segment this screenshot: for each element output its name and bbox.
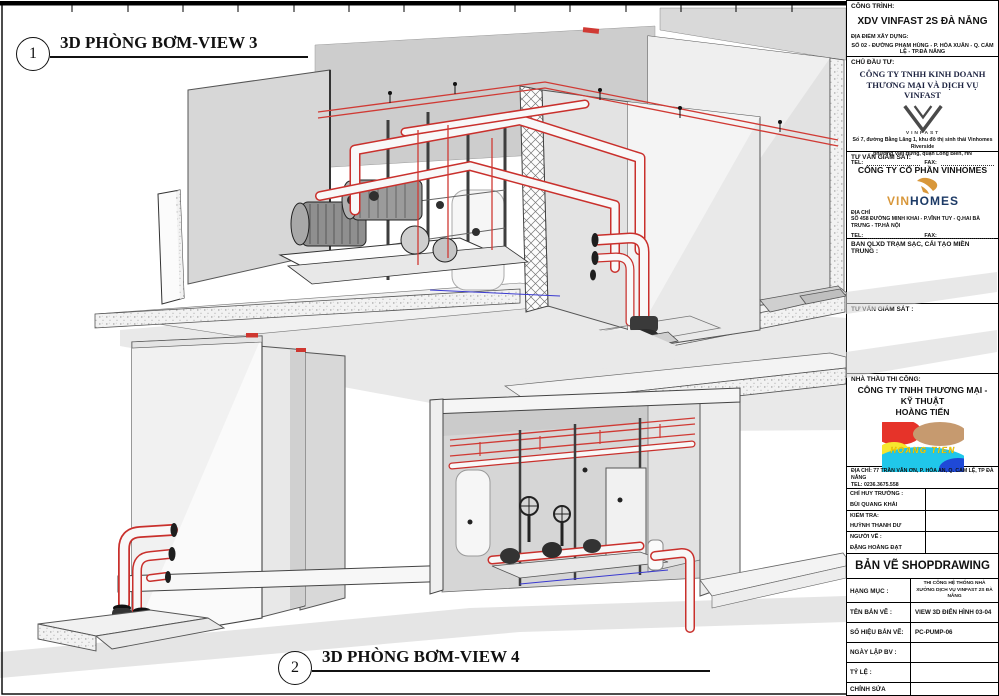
view-number: 1 [29,45,37,63]
signer-role: KIỂM TRA: [850,513,922,519]
supervisor-address: SỐ 458 ĐƯỜNG MINH KHAI - P.VĨNH TUY - Q.… [851,216,994,230]
hoang-tien-logo-text: HOANG TIEN [890,446,955,455]
signature-rows: CHỈ HUY TRƯỞNG : BÙI QUANG KHẢI KIỂM TRA… [847,489,998,554]
view3-title: 1 3D PHÒNG BƠM-VIEW 3 [16,24,308,58]
signer-name: ĐẶNG HOÀNG ĐẠT [850,545,922,551]
investor-label: CHỦ ĐẦU TƯ: [851,59,994,66]
shopdrawing-sheet: 1 3D PHÒNG BƠM-VIEW 3 2 3D PHÒNG BƠM-VIE… [0,0,999,696]
investor-company-line1: CÔNG TY TNHH KINH DOANH [851,69,994,80]
supervisor2-label: TƯ VẤN GIÁM SÁT : [851,306,994,313]
row-value: VIEW 3D ĐIỂN HÌNH 03-04 [911,603,998,622]
vinfast-logo-text: VINFAST [905,130,939,135]
signature-cell [925,511,998,532]
view4-title: 2 3D PHÒNG BƠM-VIEW 4 [278,638,710,672]
contractor-company-line1: CÔNG TY TNHH THƯƠNG MẠI - KỸ THUẬT [851,385,994,407]
project-label: CÔNG TRÌNH: [851,3,994,10]
contractor-tel: TEL: 0236.3675.558 [851,482,994,489]
project-name: XDV VINFAST 2S ĐÀ NẴNG [851,16,994,27]
svg-text:VINHOMES: VINHOMES [886,194,958,208]
row-value [911,683,998,696]
supervisor2-section: TƯ VẤN GIÁM SÁT : [847,304,998,374]
contractor-address: 77 TRẦN VĂN ƠN, P. HÒA AN, Q. CẨM LỆ, TP… [851,468,994,481]
contractor-label: NHÀ THẦU THI CÔNG: [851,376,994,383]
signer-name: BÙI QUANG KHẢI [850,502,922,508]
info-row-hang-muc: HẠNG MỤC : THI CÔNG HỆ THỐNG NHÀ XƯỞNG D… [847,579,998,603]
view4-number-bubble: 2 [278,651,312,685]
signer-name: HUỲNH THANH DƯ [850,523,922,529]
view4-title-text: 3D PHÒNG BƠM-VIEW 4 [312,647,710,672]
supervisor-section: TƯ VẤN GIÁM SÁT: CÔNG TY CỔ PHẦN VINHOME… [847,152,998,239]
contractor-section: NHÀ THẦU THI CÔNG: CÔNG TY TNHH THƯƠNG M… [847,374,998,467]
wall-panels-left [132,333,345,640]
signature-cell [925,489,998,510]
contractor-address-label: ĐỊA CHỈ: [851,468,872,474]
info-row-chinh-sua: CHỈNH SỬA [847,683,998,696]
info-row-so-hieu: SỐ HIỆU BẢN VẼ: PC-PUMP-06 [847,623,998,643]
project-section: CÔNG TRÌNH: XDV VINFAST 2S ĐÀ NẴNG ĐỊA Đ… [847,1,998,57]
row-value [911,663,998,682]
investor-address-line1: Số 7, đường Bằng Lăng 1, khu đô thị sinh… [851,137,994,151]
row-value: PC-PUMP-06 [911,623,998,642]
supervisor-company: CÔNG TY CỔ PHẦN VINHOMES [851,165,994,176]
site-address: SỐ 02 - ĐƯỜNG PHẠM HÙNG - P. HÒA XUÂN - … [851,43,994,55]
signer-row: CHỈ HUY TRƯỞNG : BÙI QUANG KHẢI [847,489,998,511]
supervisor-label: TƯ VẤN GIÁM SÁT: [851,154,994,161]
tel-label: TEL: [851,233,863,239]
title-block: CÔNG TRÌNH: XDV VINFAST 2S ĐÀ NẴNG ĐỊA Đ… [846,0,999,696]
signer-row: KIỂM TRA: HUỲNH THANH DƯ [847,511,998,533]
row-label: NGÀY LẬP BV : [847,643,911,662]
vinhomes-logo-vin: VIN [886,194,909,208]
row-value: THI CÔNG HỆ THỐNG NHÀ XƯỞNG DỊCH VỤ VINF… [911,579,998,603]
fax-label: FAX: [924,233,937,239]
row-label: CHỈNH SỬA [847,683,911,696]
row-label: HẠNG MỤC : [847,579,911,603]
signature-cell [925,532,998,553]
row-value [911,643,998,662]
drawing-type-title: BẢN VẼ SHOPDRAWING [847,554,998,579]
signer-role: CHỈ HUY TRƯỞNG : [850,491,922,497]
signer-row: NGƯỜI VẼ : ĐẶNG HOÀNG ĐẠT [847,532,998,554]
investor-company-line2: THƯƠNG MẠI VÀ DỊCH VỤ VINFAST [851,80,994,101]
row-label: SỐ HIỆU BẢN VẼ: [847,623,911,642]
row-label: TÊN BẢN VẼ : [847,603,911,622]
view3-number-bubble: 1 [16,37,50,71]
vinhomes-logo: VINHOMES [875,177,971,209]
pump-volute [433,238,457,262]
pump-volute [401,226,429,254]
contractor-company-line2: HOÀNG TIẾN [851,407,994,418]
info-row-ngay-lap: NGÀY LẬP BV : [847,643,998,663]
vinhomes-logo-homes: HOMES [910,194,959,208]
info-row-ty-le: TỶ LỆ : [847,663,998,683]
contractor-address-section: ĐỊA CHỈ: 77 TRẦN VĂN ƠN, P. HÒA AN, Q. C… [847,467,998,489]
view-number: 2 [291,659,299,677]
hoang-tien-logo: HOANG TIEN [882,422,964,472]
management-board-label: BAN QLXD TRẠM SẠC, CẢI TẠO MIỀN TRUNG : [851,241,994,255]
vinfast-logo: VINFAST [891,103,955,135]
signer-role: NGƯỜI VẼ : [850,534,922,540]
site-label: ĐỊA ĐIỂM XÂY DỰNG: [851,34,994,40]
red-marker [246,333,258,338]
info-row-ten-ban-ve: TÊN BẢN VẼ : VIEW 3D ĐIỂN HÌNH 03-04 [847,603,998,623]
tank [456,470,490,556]
investor-section: CHỦ ĐẦU TƯ: CÔNG TY TNHH KINH DOANH THƯƠ… [847,57,998,152]
row-label: TỶ LỆ : [847,663,911,682]
management-board-section: BAN QLXD TRẠM SẠC, CẢI TẠO MIỀN TRUNG : [847,239,998,304]
view3-title-text: 3D PHÒNG BƠM-VIEW 3 [50,33,308,58]
